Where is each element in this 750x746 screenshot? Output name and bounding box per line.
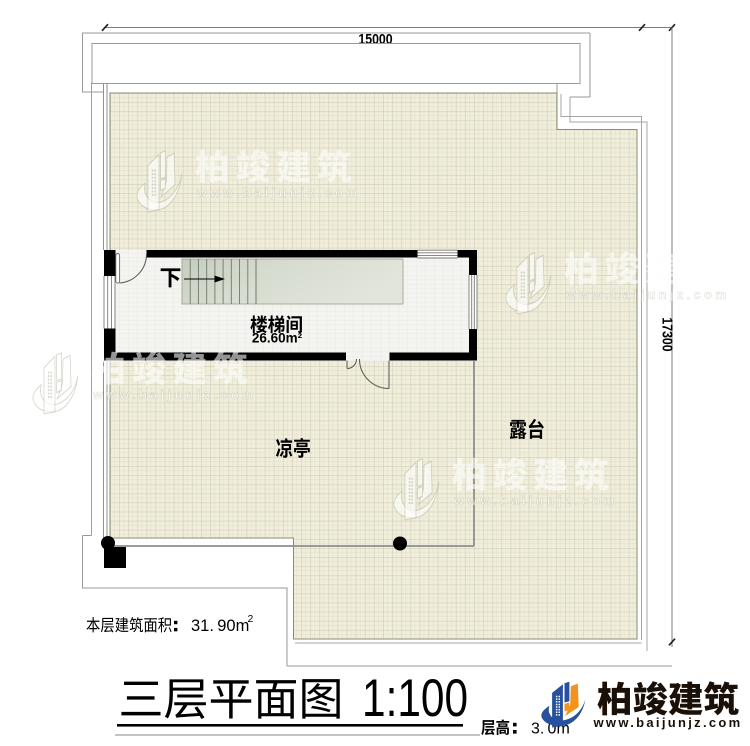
svg-text:www.baijunjz.com: www.baijunjz.com	[565, 288, 730, 302]
svg-text:www.baijunjz.com: www.baijunjz.com	[196, 186, 361, 200]
svg-text:17300: 17300	[659, 317, 675, 351]
svg-text:www.baijunjz.com: www.baijunjz.com	[453, 494, 618, 508]
svg-text:31. 90m: 31. 90m	[191, 617, 249, 635]
svg-text:1:100: 1:100	[362, 670, 468, 729]
svg-text:www.baijunjz.com: www.baijunjz.com	[92, 388, 257, 402]
svg-text:2: 2	[248, 613, 254, 625]
svg-text:26.60m²: 26.60m²	[252, 331, 303, 346]
svg-text:www.baijunjz.com: www.baijunjz.com	[593, 715, 743, 730]
